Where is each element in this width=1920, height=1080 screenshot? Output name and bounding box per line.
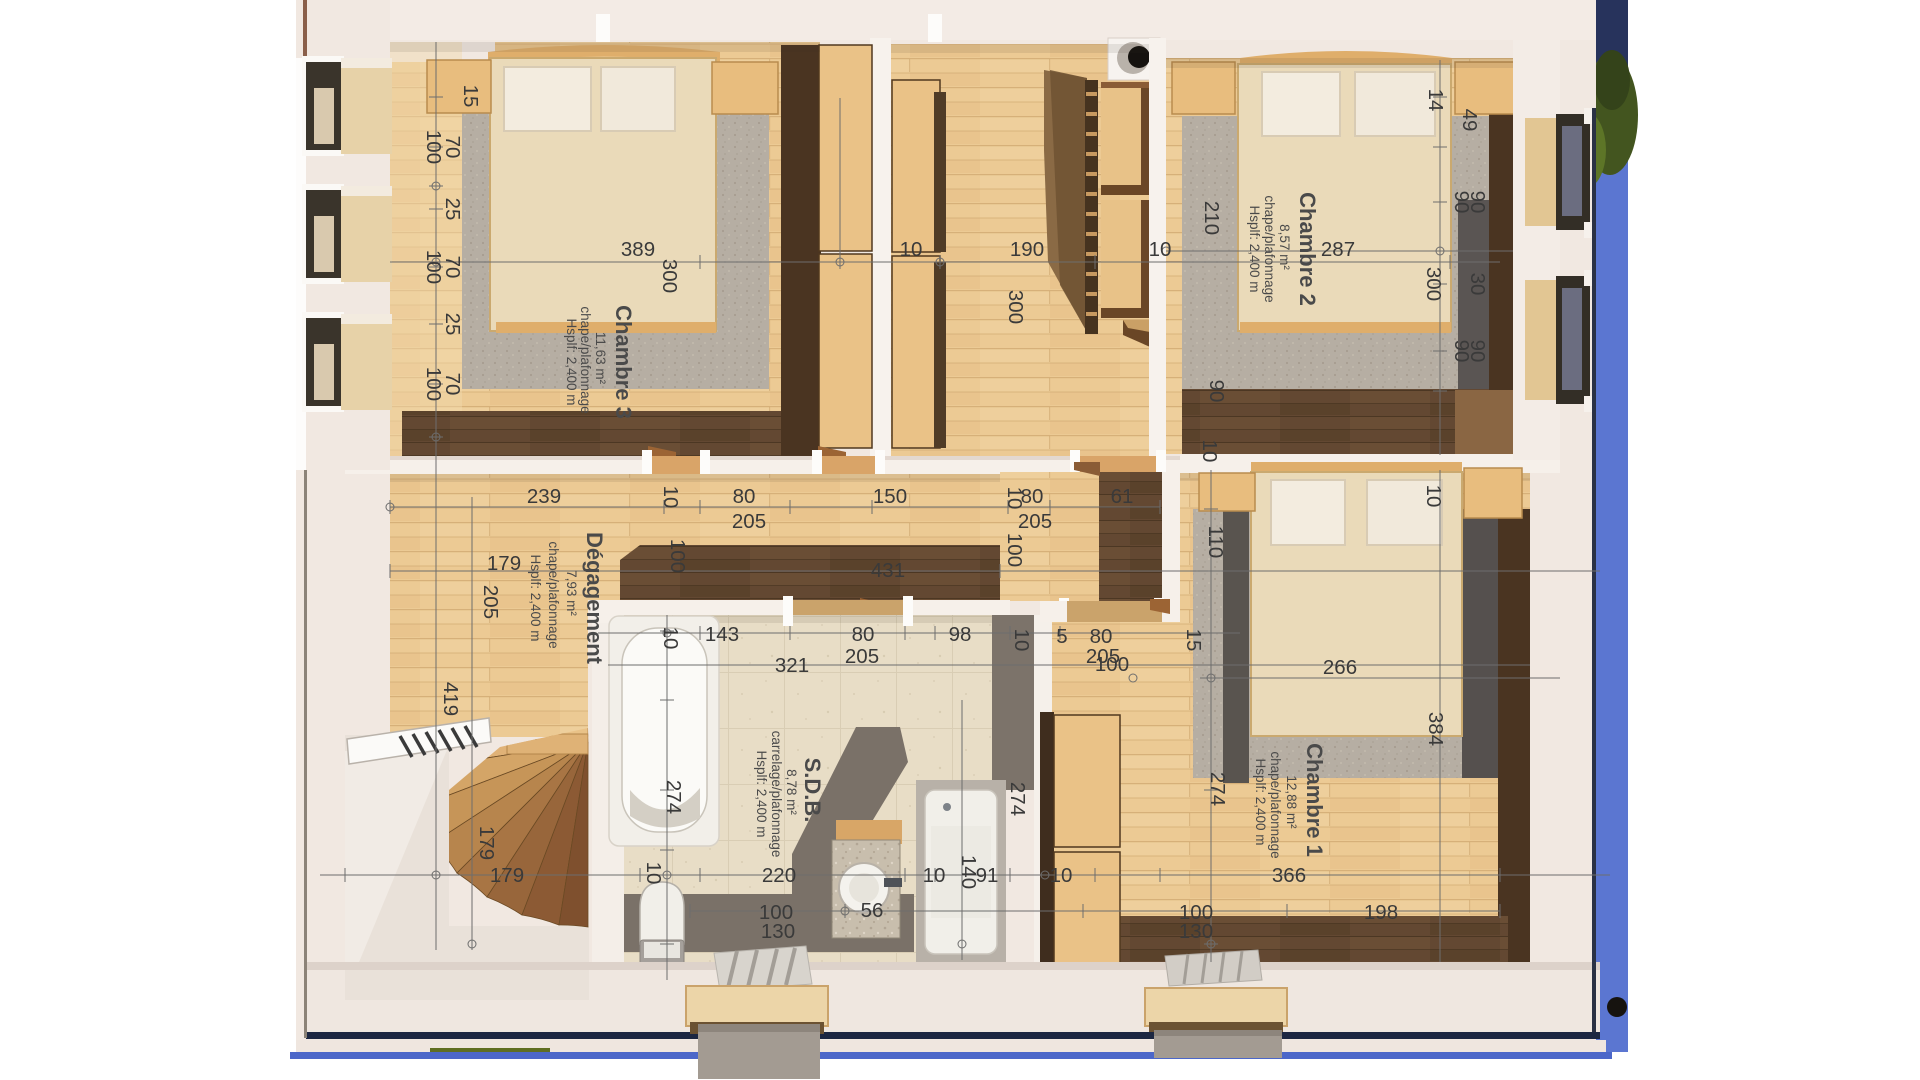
svg-text:130: 130	[1179, 920, 1213, 943]
svg-text:15: 15	[459, 85, 482, 108]
svg-text:carrelage/plafonnage: carrelage/plafonnage	[769, 731, 784, 858]
svg-text:7,93 m²: 7,93 m²	[564, 570, 579, 616]
svg-text:389: 389	[621, 238, 655, 261]
svg-text:143: 143	[705, 623, 739, 646]
svg-text:10: 10	[642, 862, 665, 885]
svg-text:Dégagement: Dégagement	[582, 532, 607, 665]
svg-text:10: 10	[659, 627, 682, 650]
svg-text:10: 10	[1050, 864, 1073, 887]
svg-text:384: 384	[1424, 712, 1447, 746]
svg-text:10: 10	[1010, 629, 1033, 652]
svg-text:Chambre 2: Chambre 2	[1295, 192, 1320, 306]
svg-text:100: 100	[1003, 533, 1026, 567]
svg-text:chape/plafonnage: chape/plafonnage	[1268, 751, 1283, 858]
svg-text:10: 10	[1198, 440, 1221, 463]
svg-text:210: 210	[1200, 201, 1223, 235]
svg-text:25: 25	[441, 198, 464, 221]
svg-text:110: 110	[1204, 526, 1227, 559]
svg-text:239: 239	[527, 485, 561, 508]
svg-text:90: 90	[1466, 340, 1489, 363]
svg-text:266: 266	[1323, 656, 1357, 679]
svg-text:80: 80	[733, 485, 756, 508]
svg-text:chape/plafonnage: chape/plafonnage	[1262, 195, 1277, 302]
svg-text:10: 10	[1422, 485, 1445, 508]
svg-text:8,78 m²: 8,78 m²	[784, 769, 799, 815]
svg-text:198: 198	[1364, 901, 1398, 924]
svg-text:11,63 m²: 11,63 m²	[593, 332, 608, 385]
svg-text:25: 25	[441, 313, 464, 336]
svg-text:90: 90	[1466, 191, 1489, 214]
svg-text:10: 10	[1003, 487, 1026, 510]
svg-text:179: 179	[490, 864, 524, 887]
svg-text:10: 10	[923, 864, 946, 887]
svg-text:10: 10	[1149, 238, 1172, 261]
svg-text:70: 70	[441, 373, 464, 396]
svg-text:100: 100	[666, 539, 689, 573]
svg-text:Chambre 3: Chambre 3	[611, 305, 636, 419]
svg-text:300: 300	[1004, 290, 1027, 324]
svg-text:Hsplf: 2,400 m: Hsplf: 2,400 m	[754, 750, 769, 837]
svg-text:61: 61	[1111, 485, 1134, 508]
svg-text:205: 205	[1018, 510, 1052, 533]
svg-text:S.D.B.: S.D.B.	[800, 758, 825, 823]
svg-text:366: 366	[1272, 864, 1306, 887]
svg-text:220: 220	[762, 864, 796, 887]
svg-text:15: 15	[1182, 629, 1205, 652]
svg-text:205: 205	[845, 645, 879, 668]
svg-text:274: 274	[1006, 782, 1029, 816]
svg-text:100: 100	[1095, 653, 1129, 676]
svg-text:274: 274	[662, 780, 685, 814]
svg-text:90: 90	[1205, 380, 1228, 403]
svg-text:98: 98	[949, 623, 972, 646]
svg-text:300: 300	[1422, 267, 1445, 301]
svg-text:130: 130	[761, 920, 795, 943]
svg-text:150: 150	[873, 485, 907, 508]
svg-text:190: 190	[1010, 238, 1044, 261]
svg-text:287: 287	[1321, 238, 1355, 261]
svg-text:Hsplf: 2,400 m: Hsplf: 2,400 m	[528, 554, 543, 641]
svg-text:179: 179	[487, 552, 521, 575]
svg-text:14: 14	[1424, 89, 1447, 112]
svg-text:140: 140	[957, 855, 980, 889]
svg-text:chape/plafonnage: chape/plafonnage	[546, 541, 561, 648]
svg-text:431: 431	[871, 559, 905, 582]
svg-text:300: 300	[658, 259, 681, 293]
svg-text:56: 56	[861, 899, 884, 922]
svg-text:179: 179	[475, 826, 498, 860]
svg-text:70: 70	[441, 256, 464, 279]
svg-text:Hsplf: 2,400 m: Hsplf: 2,400 m	[564, 318, 579, 405]
svg-text:chape/plafonnage: chape/plafonnage	[578, 306, 593, 413]
svg-text:Hsplf: 2,400 m: Hsplf: 2,400 m	[1247, 205, 1262, 292]
svg-text:49: 49	[1458, 109, 1481, 132]
svg-text:321: 321	[775, 654, 809, 677]
svg-text:205: 205	[732, 510, 766, 533]
svg-text:12,88 m²: 12,88 m²	[1284, 775, 1299, 829]
svg-text:70: 70	[441, 136, 464, 159]
svg-text:10: 10	[659, 486, 682, 509]
svg-text:5: 5	[1056, 625, 1067, 648]
svg-text:30: 30	[1466, 273, 1489, 296]
svg-text:Chambre 1: Chambre 1	[1302, 743, 1327, 857]
svg-text:205: 205	[479, 585, 502, 619]
svg-text:10: 10	[900, 238, 923, 261]
svg-text:8,57 m²: 8,57 m²	[1277, 224, 1292, 270]
svg-text:274: 274	[1206, 772, 1229, 806]
svg-text:Hsplf: 2,400 m: Hsplf: 2,400 m	[1253, 758, 1268, 845]
svg-text:80: 80	[852, 623, 875, 646]
svg-text:419: 419	[439, 682, 462, 716]
